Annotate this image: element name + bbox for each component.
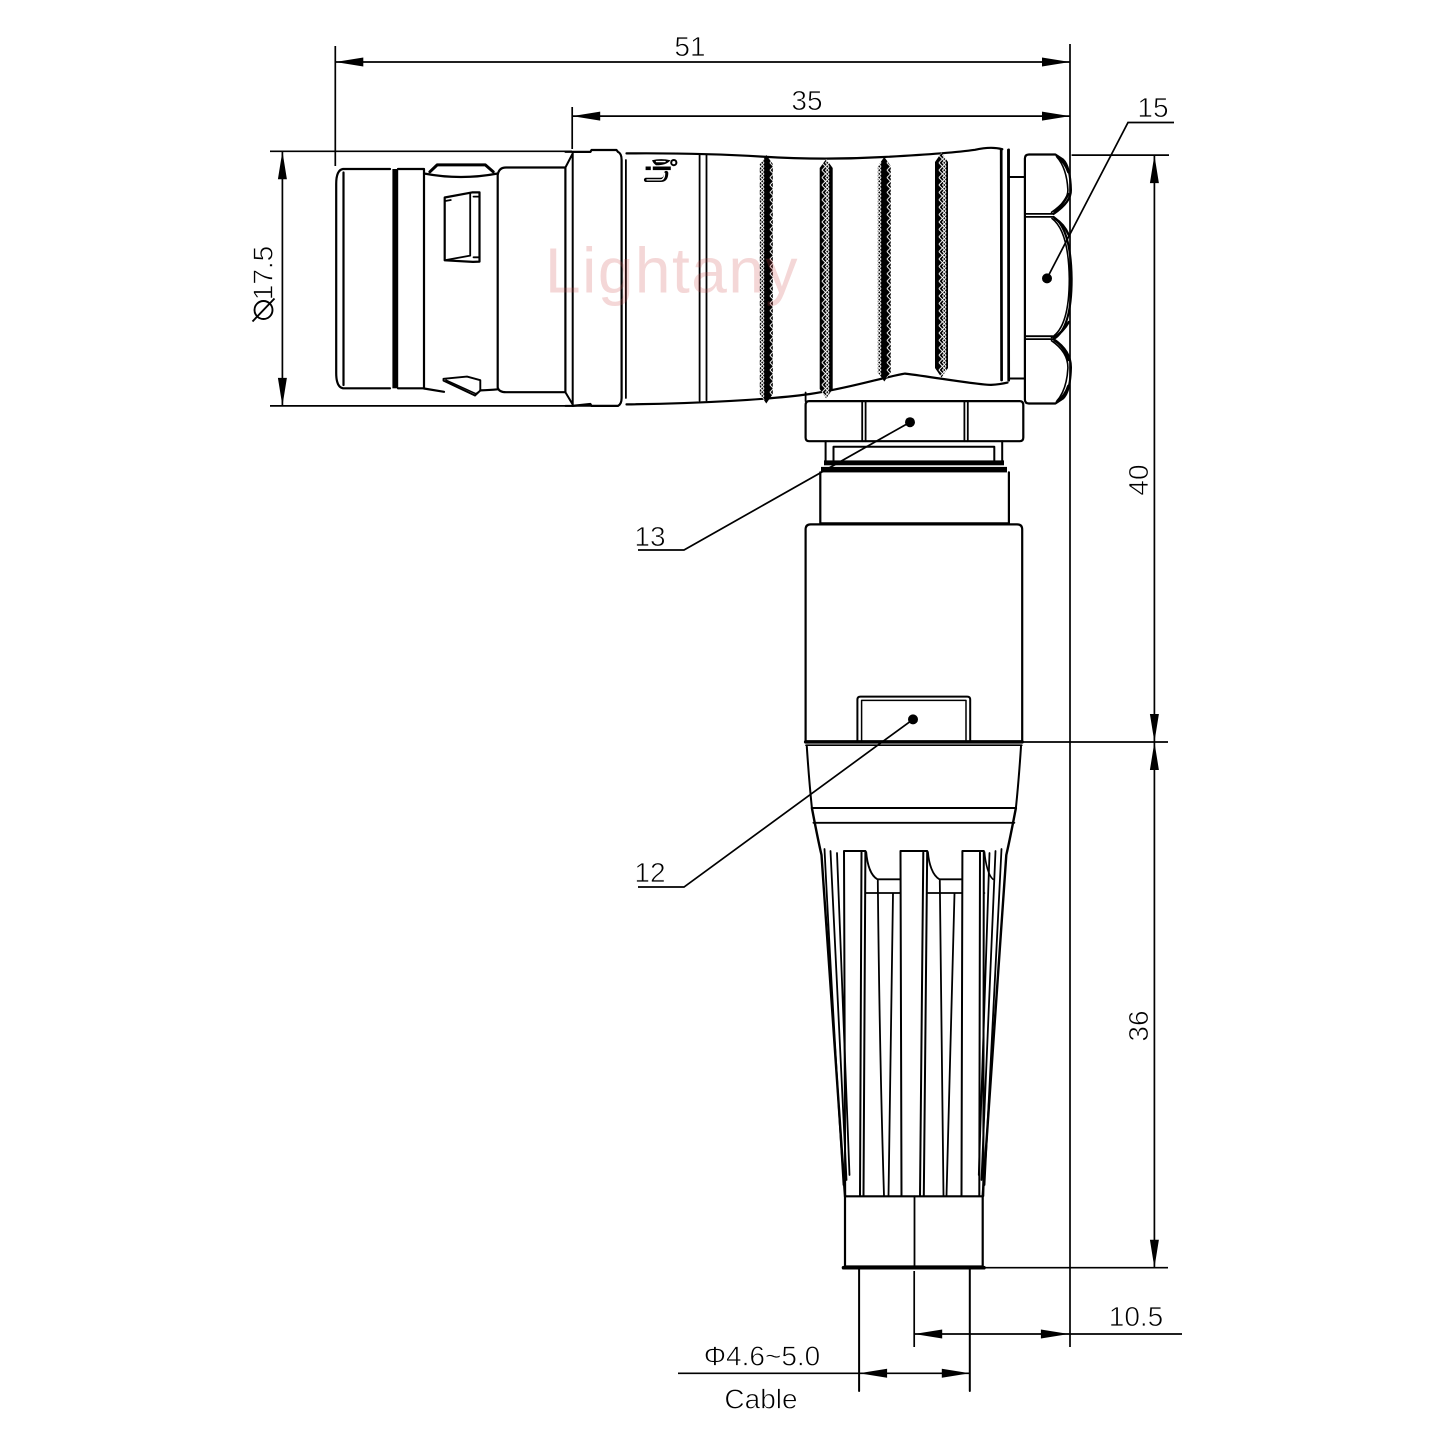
svg-text:13: 13: [634, 521, 665, 552]
svg-text:15: 15: [1137, 92, 1168, 123]
svg-text:36: 36: [1123, 1010, 1154, 1041]
svg-text:40: 40: [1123, 464, 1154, 495]
svg-text:10.5: 10.5: [1109, 1301, 1164, 1332]
svg-text:Cable: Cable: [724, 1384, 797, 1415]
svg-text:17.5: 17.5: [248, 246, 279, 301]
svg-text:Φ4.6~5.0: Φ4.6~5.0: [704, 1341, 821, 1372]
svg-text:12: 12: [634, 857, 665, 888]
svg-text:Lightany: Lightany: [545, 235, 799, 307]
svg-text:35: 35: [791, 85, 822, 116]
svg-text:51: 51: [674, 31, 705, 62]
